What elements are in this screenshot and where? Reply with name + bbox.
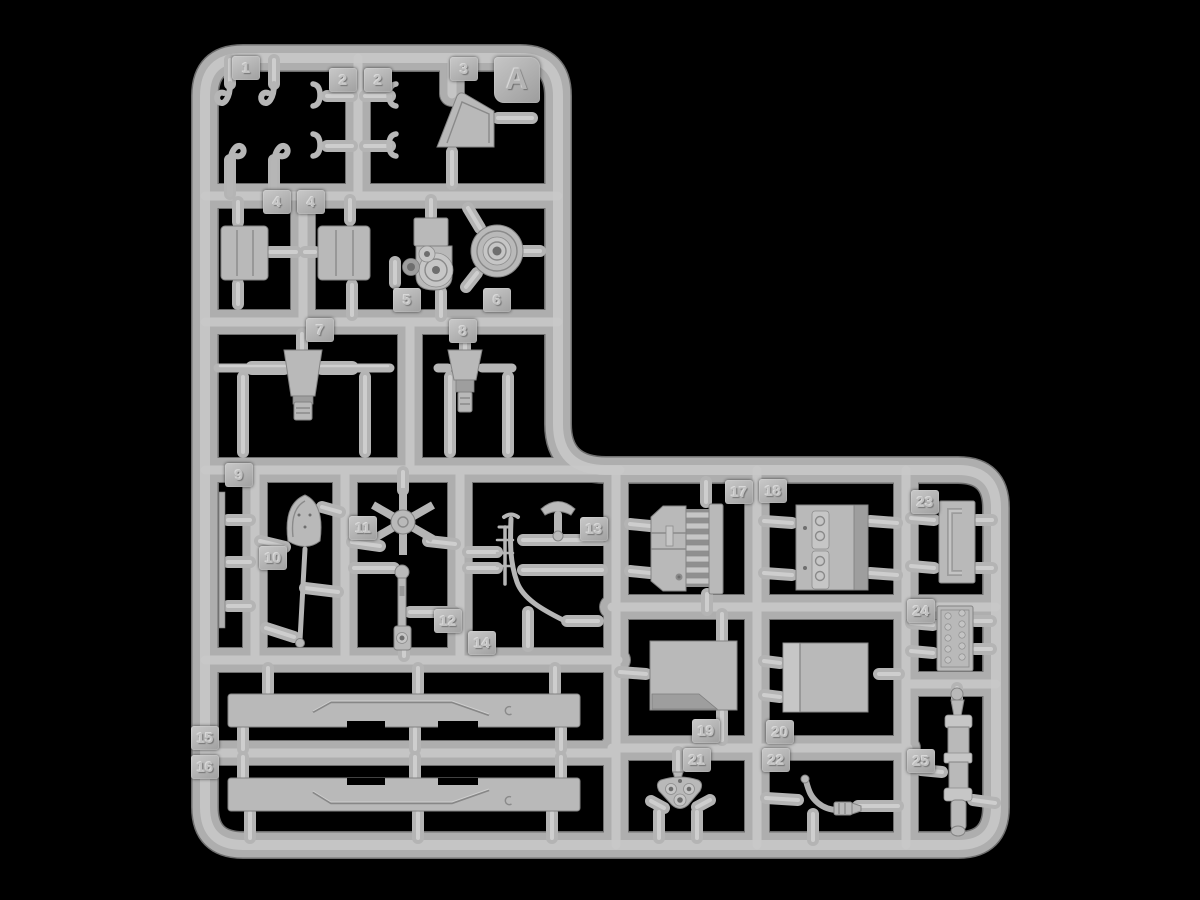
part-25-muffler — [944, 688, 972, 836]
sprue-letter-badge: A — [494, 57, 540, 103]
part-20-fuel-tank — [783, 643, 868, 712]
part-tag-5: 5 — [393, 288, 421, 312]
part-tag-17: 17 — [725, 480, 753, 504]
part-tag-20: 20 — [766, 720, 794, 744]
part-tag-3: 3 — [450, 57, 478, 81]
sprue-render — [0, 0, 1200, 900]
part-17-engine-block — [651, 504, 723, 594]
part-tag-25: 25 — [907, 749, 935, 773]
part-tag-10: 10 — [259, 546, 287, 570]
part-tag-19: 19 — [692, 719, 720, 743]
part-tag-21: 21 — [683, 748, 711, 772]
part-tag-12: 12 — [434, 609, 462, 633]
part-tag-11: 11 — [349, 516, 377, 540]
part-9-pry-bar — [219, 492, 225, 628]
part-19-fuel-tank — [650, 641, 737, 710]
part-tag-23: 23 — [911, 490, 939, 514]
part-18-radiator — [796, 505, 868, 590]
part-tag-22: 22 — [762, 748, 790, 772]
part-tag-16: 16 — [191, 755, 219, 779]
part-24-rivet-plate — [937, 606, 973, 671]
part-tag-15: 15 — [191, 726, 219, 750]
part-16-frame-rail — [228, 778, 580, 811]
sprue-photo-stage: 1 2 2 3 4 4 5 6 7 8 9 10 11 12 13 14 15 … — [0, 0, 1200, 900]
part-tag-4b: 4 — [297, 190, 325, 214]
part-tag-9: 9 — [225, 463, 253, 487]
part-tag-14: 14 — [468, 631, 496, 655]
part-tag-8: 8 — [449, 319, 477, 343]
part-tag-1: 1 — [232, 56, 260, 80]
part-10-shovel — [287, 495, 321, 648]
part-tag-18: 18 — [759, 479, 787, 503]
part-23-bracket-plate — [939, 501, 975, 583]
part-tag-24: 24 — [907, 599, 935, 623]
part-tag-7: 7 — [306, 318, 334, 342]
part-5-winch — [403, 218, 454, 290]
part-tag-2a: 2 — [329, 68, 357, 92]
part-15-frame-rail — [228, 694, 580, 728]
part-tag-2b: 2 — [364, 68, 392, 92]
part-tag-4a: 4 — [263, 190, 291, 214]
part-tag-13: 13 — [580, 517, 608, 541]
part-6-pulley — [471, 225, 523, 277]
part-tag-6: 6 — [483, 288, 511, 312]
